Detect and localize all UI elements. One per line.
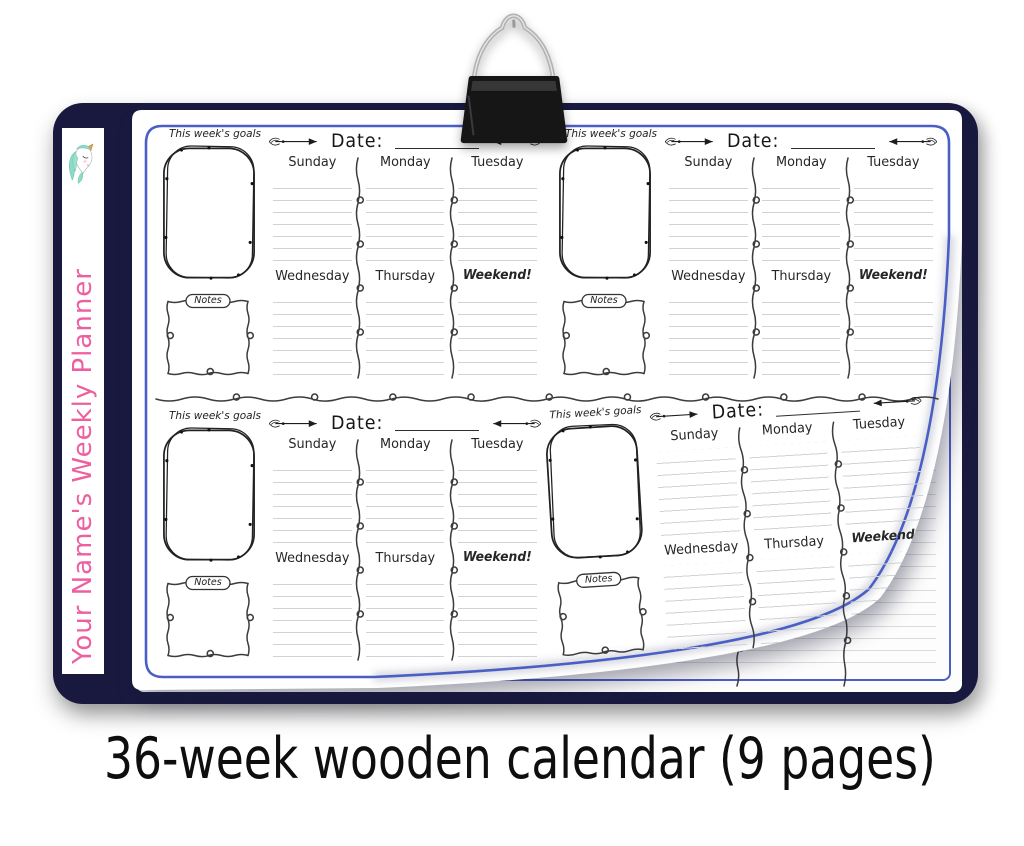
ruled-lines: [458, 573, 537, 662]
arrow-right-icon: [268, 416, 324, 430]
ruled-lines: [854, 177, 933, 266]
top-page: This week's goals Notes Date: Sunday Mon…: [132, 110, 962, 690]
date-label: Date:: [711, 398, 765, 423]
ruled-lines: [749, 442, 833, 536]
day-cell-wednesday: Wednesday: [266, 268, 359, 382]
day-label: Monday: [742, 418, 831, 443]
day-grid: Sunday Monday Tuesday Wednesday Thursday: [266, 436, 544, 664]
week-section: This week's goals Notes Date: Sunday Mon…: [534, 387, 941, 668]
goals-frame-icon: [541, 418, 647, 566]
arrow-left-icon: [866, 393, 923, 410]
day-label: Monday: [361, 436, 449, 456]
ruled-lines: [854, 291, 933, 380]
day-label: Tuesday: [454, 154, 542, 174]
day-cell-monday: Monday: [359, 436, 452, 550]
day-label: Weekend!: [454, 268, 542, 288]
notes-box: Notes: [548, 567, 653, 666]
day-cell-tuesday: Tuesday: [451, 154, 544, 268]
day-label: Wednesday: [657, 538, 746, 563]
weekly-planner-page: This week's goals Notes Date: Sunday Mon…: [132, 110, 962, 690]
week-slot-3: This week's goals Notes Date: Sunday Mon…: [154, 410, 546, 668]
brand-text: Your Name's Weekly Planner: [68, 268, 98, 664]
day-grid: Sunday Monday Tuesday Wednesday Thursday: [662, 154, 940, 382]
caption: 36-week wooden calendar (9 pages): [0, 726, 1024, 792]
arrow-right-icon: [268, 134, 324, 148]
week-section: This week's goals Notes Date: Sunday Mon…: [550, 128, 942, 386]
day-cell-weekend: Weekend!: [451, 268, 544, 382]
day-label: Thursday: [757, 268, 845, 288]
day-label: Wednesday: [268, 550, 356, 570]
goals-frame-icon: [160, 142, 258, 284]
ruled-lines: [273, 459, 352, 548]
day-label: Sunday: [268, 154, 356, 174]
ruled-lines: [458, 459, 537, 548]
arrow-left-icon: [486, 416, 542, 430]
day-label: Thursday: [361, 268, 449, 288]
ruled-lines: [273, 177, 352, 266]
squiggle-divider-icon: [352, 438, 364, 662]
ruled-lines: [663, 561, 747, 655]
day-cell-weekend: Weekend!: [847, 268, 940, 382]
arrow-left-icon: [882, 134, 938, 148]
day-label: Weekend!: [842, 527, 931, 552]
day-label: Wednesday: [664, 268, 752, 288]
day-cell-thursday: Thursday: [755, 268, 848, 382]
day-cell-monday: Monday: [755, 154, 848, 268]
days-area: Date: Sunday Monday Tuesday Wedn: [646, 387, 941, 662]
ruled-lines: [669, 177, 748, 266]
ruled-lines: [656, 447, 740, 541]
day-grid: Sunday Monday Tuesday Wednesday Thursday: [266, 154, 544, 382]
date-blank-line: [791, 134, 875, 149]
notes-box: Notes: [158, 573, 258, 666]
arrow-right-icon: [648, 406, 705, 423]
day-cell-tuesday: Tuesday: [847, 154, 940, 268]
ruled-lines: [848, 550, 932, 644]
ruled-lines: [273, 573, 352, 662]
notes-box: Notes: [554, 291, 654, 384]
goals-frame-icon: [556, 142, 654, 284]
week-slot-4: This week's goals Notes Date: Sunday Mon…: [534, 387, 941, 668]
day-cell-wednesday: Wednesday: [655, 538, 754, 657]
day-cell-wednesday: Wednesday: [662, 268, 755, 382]
ruled-lines: [755, 555, 839, 649]
days-area: Date: Sunday Monday Tuesday Wedn: [266, 410, 546, 668]
day-label: Thursday: [361, 550, 449, 570]
day-cell-tuesday: Tuesday: [833, 413, 932, 532]
date-label: Date:: [727, 130, 779, 152]
day-grid: Sunday Monday Tuesday Wednesday Thursday: [648, 413, 939, 658]
day-cell-thursday: Thursday: [359, 268, 452, 382]
day-cell-monday: Monday: [740, 418, 839, 537]
day-cell-sunday: Sunday: [662, 154, 755, 268]
day-cell-weekend: Weekend!: [840, 526, 939, 645]
binder-clip: [438, 2, 590, 152]
ruled-lines: [458, 177, 537, 266]
day-cell-thursday: Thursday: [747, 532, 846, 651]
week-slot-1: This week's goals Notes Date: Sunday Mon…: [154, 128, 546, 386]
date-row: Date:: [266, 410, 546, 436]
ruled-lines: [366, 177, 445, 266]
squiggle-divider-icon: [748, 156, 760, 380]
date-blank-line: [395, 416, 479, 431]
unicorn-icon: [65, 140, 101, 186]
day-label: Sunday: [268, 436, 356, 456]
arrow-right-icon: [664, 134, 720, 148]
notes-label: Notes: [158, 295, 258, 306]
day-cell-sunday: Sunday: [266, 154, 359, 268]
day-label: Tuesday: [454, 436, 542, 456]
caption-text: 36-week wooden calendar (9 pages): [104, 726, 936, 792]
day-label: Sunday: [650, 424, 739, 449]
days-area: Date: Sunday Monday Tuesday Wedn: [662, 128, 942, 386]
day-cell-sunday: Sunday: [648, 424, 747, 543]
notes-box: Notes: [158, 291, 258, 384]
squiggle-divider-icon: [446, 156, 458, 380]
date-label: Date:: [331, 130, 383, 152]
day-label: Wednesday: [268, 268, 356, 288]
sidebar-strip: Your Name's Weekly Planner: [62, 128, 104, 674]
day-label: Tuesday: [835, 413, 924, 438]
ruled-lines: [366, 573, 445, 662]
date-blank-line: [775, 396, 860, 416]
ruled-lines: [762, 177, 841, 266]
squiggle-divider-icon: [446, 438, 458, 662]
date-row: Date:: [662, 128, 942, 154]
day-label: Monday: [361, 154, 449, 174]
date-label: Date:: [331, 412, 383, 434]
ruled-lines: [273, 291, 352, 380]
day-label: Weekend!: [454, 550, 542, 570]
squiggle-divider-icon: [352, 156, 364, 380]
notes-label: Notes: [158, 577, 258, 588]
day-cell-monday: Monday: [359, 154, 452, 268]
weekly-goals-label: This week's goals: [166, 128, 264, 140]
ruled-lines: [841, 436, 925, 530]
day-cell-tuesday: Tuesday: [451, 436, 544, 550]
ruled-lines: [762, 291, 841, 380]
day-label: Sunday: [664, 154, 752, 174]
goals-frame-icon: [160, 424, 258, 566]
day-cell-weekend: Weekend!: [451, 550, 544, 664]
day-label: Monday: [757, 154, 845, 174]
weekly-goals-label: This week's goals: [166, 410, 264, 422]
notes-label: Notes: [554, 295, 654, 306]
ruled-lines: [366, 291, 445, 380]
ruled-lines: [366, 459, 445, 548]
day-label: Tuesday: [850, 154, 938, 174]
week-slot-2: This week's goals Notes Date: Sunday Mon…: [550, 128, 942, 386]
day-label: Weekend!: [850, 268, 938, 288]
day-cell-wednesday: Wednesday: [266, 550, 359, 664]
day-cell-sunday: Sunday: [266, 436, 359, 550]
week-section: This week's goals Notes Date: Sunday Mon…: [154, 128, 546, 386]
week-section: This week's goals Notes Date: Sunday Mon…: [154, 410, 546, 668]
ruled-lines: [669, 291, 748, 380]
day-label: Thursday: [749, 532, 838, 557]
days-area: Date: Sunday Monday Tuesday Wedn: [266, 128, 546, 386]
squiggle-divider-icon: [842, 156, 854, 380]
ruled-lines: [458, 291, 537, 380]
day-cell-thursday: Thursday: [359, 550, 452, 664]
